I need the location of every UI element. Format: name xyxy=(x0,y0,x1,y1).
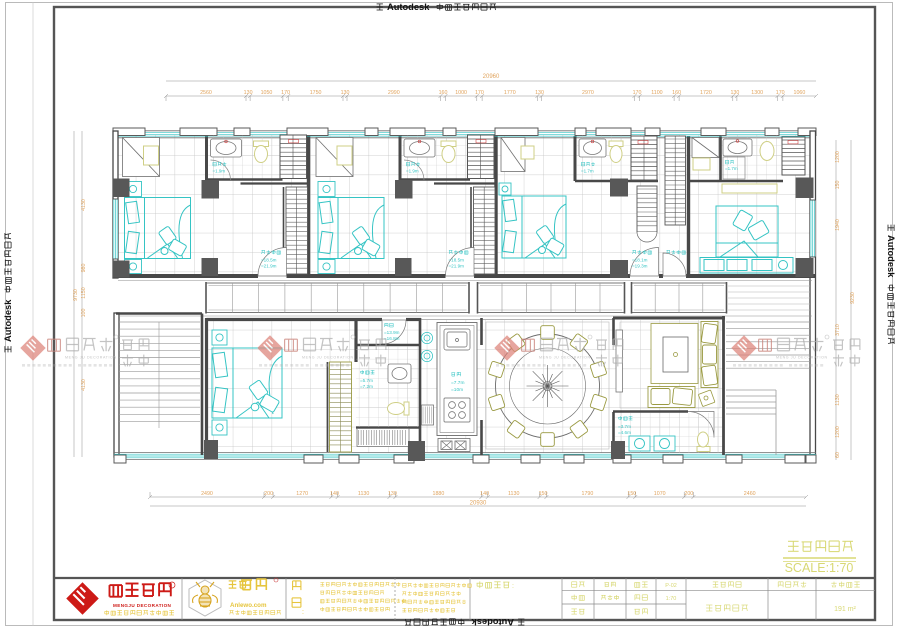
svg-text:1770: 1770 xyxy=(504,90,516,96)
svg-text:=4.6m: =4.6m xyxy=(618,430,631,435)
svg-text:130: 130 xyxy=(244,90,253,96)
svg-text:60: 60 xyxy=(835,452,841,458)
svg-text:200: 200 xyxy=(264,491,273,497)
svg-text:170: 170 xyxy=(776,90,785,96)
svg-text:130: 130 xyxy=(535,90,544,96)
svg-text:20960: 20960 xyxy=(483,74,500,80)
svg-text:9730: 9730 xyxy=(73,289,79,301)
svg-text:=10m: =10m xyxy=(451,387,463,393)
svg-text::: : xyxy=(512,583,514,590)
svg-text:200: 200 xyxy=(684,491,693,497)
svg-text:=19.3m: =19.3m xyxy=(632,264,648,269)
svg-text:20930: 20930 xyxy=(470,501,487,507)
svg-text:Autodesk: Autodesk xyxy=(3,299,13,342)
svg-text:Autodesk: Autodesk xyxy=(886,235,896,278)
svg-text::: : xyxy=(302,609,304,616)
svg-text:130: 130 xyxy=(341,90,350,96)
svg-text:2460: 2460 xyxy=(744,491,756,497)
svg-text:1720: 1720 xyxy=(700,90,712,96)
svg-text:4130: 4130 xyxy=(81,199,87,211)
svg-text:=7.2m: =7.2m xyxy=(360,384,373,389)
svg-text:=13.9m: =13.9m xyxy=(384,330,400,335)
svg-text:140: 140 xyxy=(330,491,339,497)
svg-text:1940: 1940 xyxy=(835,219,841,231)
svg-text:160: 160 xyxy=(672,90,681,96)
svg-text:2990: 2990 xyxy=(388,90,400,96)
svg-text:MENG JU DECORATION: MENG JU DECORATION xyxy=(539,356,591,360)
svg-text:170: 170 xyxy=(633,90,642,96)
svg-text:980: 980 xyxy=(81,264,87,273)
svg-text:1:70: 1:70 xyxy=(666,596,677,602)
svg-text:1270: 1270 xyxy=(296,491,308,497)
svg-text:1300: 1300 xyxy=(751,90,763,96)
svg-text:9230: 9230 xyxy=(850,292,856,304)
svg-text:140: 140 xyxy=(480,491,489,497)
svg-text:191 m²: 191 m² xyxy=(834,606,856,613)
svg-text:1050: 1050 xyxy=(261,90,273,96)
svg-text:=1.9m: =1.9m xyxy=(213,169,226,174)
svg-text:SCALE:1:70: SCALE:1:70 xyxy=(785,561,854,575)
svg-text:=18.5m: =18.5m xyxy=(449,258,465,263)
svg-text:Autodesk: Autodesk xyxy=(387,2,430,12)
svg-text:150: 150 xyxy=(835,181,841,190)
svg-text:170: 170 xyxy=(281,90,290,96)
svg-text:130: 130 xyxy=(388,491,397,497)
svg-text:1130: 1130 xyxy=(835,394,841,405)
svg-text:1060: 1060 xyxy=(794,90,806,96)
svg-text:1750: 1750 xyxy=(310,90,322,96)
svg-text:1070: 1070 xyxy=(654,491,666,497)
svg-text:MENG JU DECORATION: MENG JU DECORATION xyxy=(302,356,354,360)
svg-text:Anlewo.com: Anlewo.com xyxy=(230,602,267,609)
svg-text:2970: 2970 xyxy=(582,90,594,96)
svg-text:2490: 2490 xyxy=(201,491,213,497)
svg-text:1100: 1100 xyxy=(651,90,662,96)
svg-text:100: 100 xyxy=(81,309,87,318)
svg-text:160: 160 xyxy=(439,90,448,96)
svg-text:1000: 1000 xyxy=(455,90,467,96)
svg-text:150: 150 xyxy=(539,491,548,497)
svg-text:4130: 4130 xyxy=(81,379,87,391)
svg-text:MENG JU DECORATION: MENG JU DECORATION xyxy=(65,356,117,360)
svg-text:=1.9m: =1.9m xyxy=(406,169,419,174)
svg-text:1130: 1130 xyxy=(508,491,519,497)
svg-text:1200: 1200 xyxy=(835,151,841,163)
svg-text:=3.7m: =3.7m xyxy=(618,424,631,429)
svg-text:1150: 1150 xyxy=(81,287,87,298)
svg-text:=1.7m: =1.7m xyxy=(725,166,738,171)
svg-text:=21.9m: =21.9m xyxy=(261,264,277,269)
svg-text:=1.7m: =1.7m xyxy=(581,169,594,174)
svg-text:1880: 1880 xyxy=(433,491,445,497)
svg-text:=5.7m: =5.7m xyxy=(360,378,373,383)
svg-text:1790: 1790 xyxy=(582,491,594,497)
svg-text:Autodesk: Autodesk xyxy=(471,617,514,627)
svg-text:2560: 2560 xyxy=(200,90,212,96)
svg-text:=18.5m: =18.5m xyxy=(261,258,277,263)
svg-text:3710: 3710 xyxy=(835,324,841,336)
svg-text:1130: 1130 xyxy=(358,491,369,497)
svg-text:130: 130 xyxy=(730,90,739,96)
svg-text:=18.1m: =18.1m xyxy=(632,258,648,263)
svg-text:P-02: P-02 xyxy=(665,583,677,589)
svg-text:MENG JU DECORATION: MENG JU DECORATION xyxy=(776,356,828,360)
svg-text:MENGJU DECORATION: MENGJU DECORATION xyxy=(113,603,172,608)
svg-text:=21.9m: =21.9m xyxy=(449,264,465,269)
svg-text:150: 150 xyxy=(627,491,636,497)
svg-text:1200: 1200 xyxy=(835,426,841,438)
svg-text:170: 170 xyxy=(475,90,484,96)
svg-text:=7.7m: =7.7m xyxy=(451,380,464,386)
